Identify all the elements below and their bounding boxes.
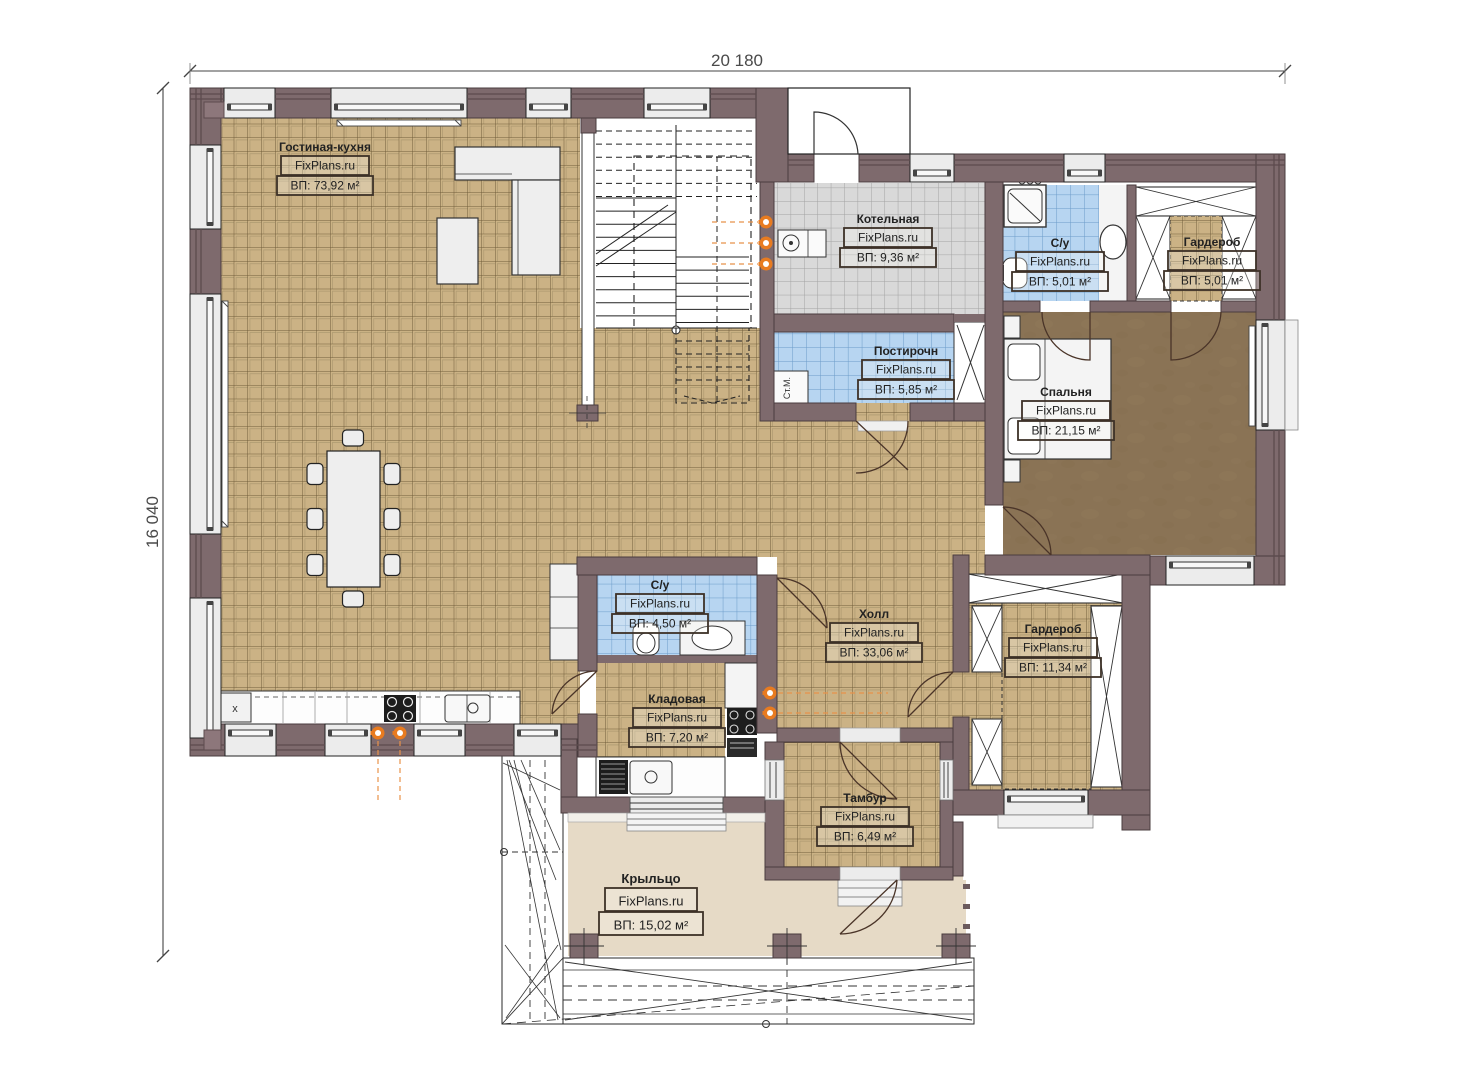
svg-text:FixPlans.ru: FixPlans.ru bbox=[835, 810, 895, 824]
svg-text:20 180: 20 180 bbox=[711, 51, 763, 70]
svg-text:ВП: 21,15 м²: ВП: 21,15 м² bbox=[1032, 424, 1101, 438]
svg-text:Постирочн: Постирочн bbox=[874, 344, 938, 358]
svg-text:FixPlans.ru: FixPlans.ru bbox=[876, 363, 936, 377]
svg-text:ВП: 6,49 м²: ВП: 6,49 м² bbox=[834, 830, 896, 844]
svg-text:16 040: 16 040 bbox=[143, 496, 162, 548]
svg-text:ВП: 11,34 м²: ВП: 11,34 м² bbox=[1019, 661, 1087, 675]
svg-text:FixPlans.ru: FixPlans.ru bbox=[630, 597, 690, 611]
svg-text:ВП: 5,01 м²: ВП: 5,01 м² bbox=[1181, 274, 1243, 288]
svg-text:FixPlans.ru: FixPlans.ru bbox=[618, 894, 683, 909]
svg-text:Спальня: Спальня bbox=[1040, 385, 1092, 399]
svg-text:x: x bbox=[232, 703, 238, 715]
svg-text:ВП: 7,20 м²: ВП: 7,20 м² bbox=[646, 731, 708, 745]
svg-text:Кладовая: Кладовая bbox=[648, 692, 705, 706]
svg-text:FixPlans.ru: FixPlans.ru bbox=[858, 231, 918, 245]
svg-text:С/у: С/у bbox=[1051, 236, 1070, 250]
svg-text:FixPlans.ru: FixPlans.ru bbox=[1036, 404, 1096, 418]
svg-text:Гардероб: Гардероб bbox=[1025, 622, 1082, 636]
svg-text:Котельная: Котельная bbox=[857, 212, 920, 226]
svg-text:С/у: С/у bbox=[651, 578, 670, 592]
svg-text:Крыльцо: Крыльцо bbox=[621, 871, 680, 886]
svg-text:ВП: 9,36 м²: ВП: 9,36 м² bbox=[857, 251, 919, 265]
svg-text:ВП: 15,02 м²: ВП: 15,02 м² bbox=[614, 918, 689, 933]
svg-text:FixPlans.ru: FixPlans.ru bbox=[1030, 255, 1090, 269]
svg-text:Гостиная-кухня: Гостиная-кухня bbox=[279, 140, 371, 154]
svg-text:ВП: 73,92 м²: ВП: 73,92 м² bbox=[291, 179, 360, 193]
svg-text:Ст.М.: Ст.М. bbox=[782, 377, 792, 399]
svg-text:ВП: 5,01 м²: ВП: 5,01 м² bbox=[1029, 275, 1091, 289]
svg-text:FixPlans.ru: FixPlans.ru bbox=[1023, 641, 1083, 655]
svg-text:ВП: 5,85 м²: ВП: 5,85 м² bbox=[875, 383, 937, 397]
svg-text:FixPlans.ru: FixPlans.ru bbox=[295, 159, 355, 173]
svg-text:Холл: Холл bbox=[859, 607, 889, 621]
svg-text:ВП: 4,50 м²: ВП: 4,50 м² bbox=[629, 617, 691, 631]
svg-text:Гардероб: Гардероб bbox=[1184, 235, 1241, 249]
svg-text:FixPlans.ru: FixPlans.ru bbox=[647, 711, 707, 725]
svg-text:FixPlans.ru: FixPlans.ru bbox=[1182, 254, 1242, 268]
svg-text:Тамбур: Тамбур bbox=[843, 791, 887, 805]
svg-text:ВП: 33,06 м²: ВП: 33,06 м² bbox=[840, 646, 909, 660]
svg-text:FixPlans.ru: FixPlans.ru bbox=[844, 626, 904, 640]
